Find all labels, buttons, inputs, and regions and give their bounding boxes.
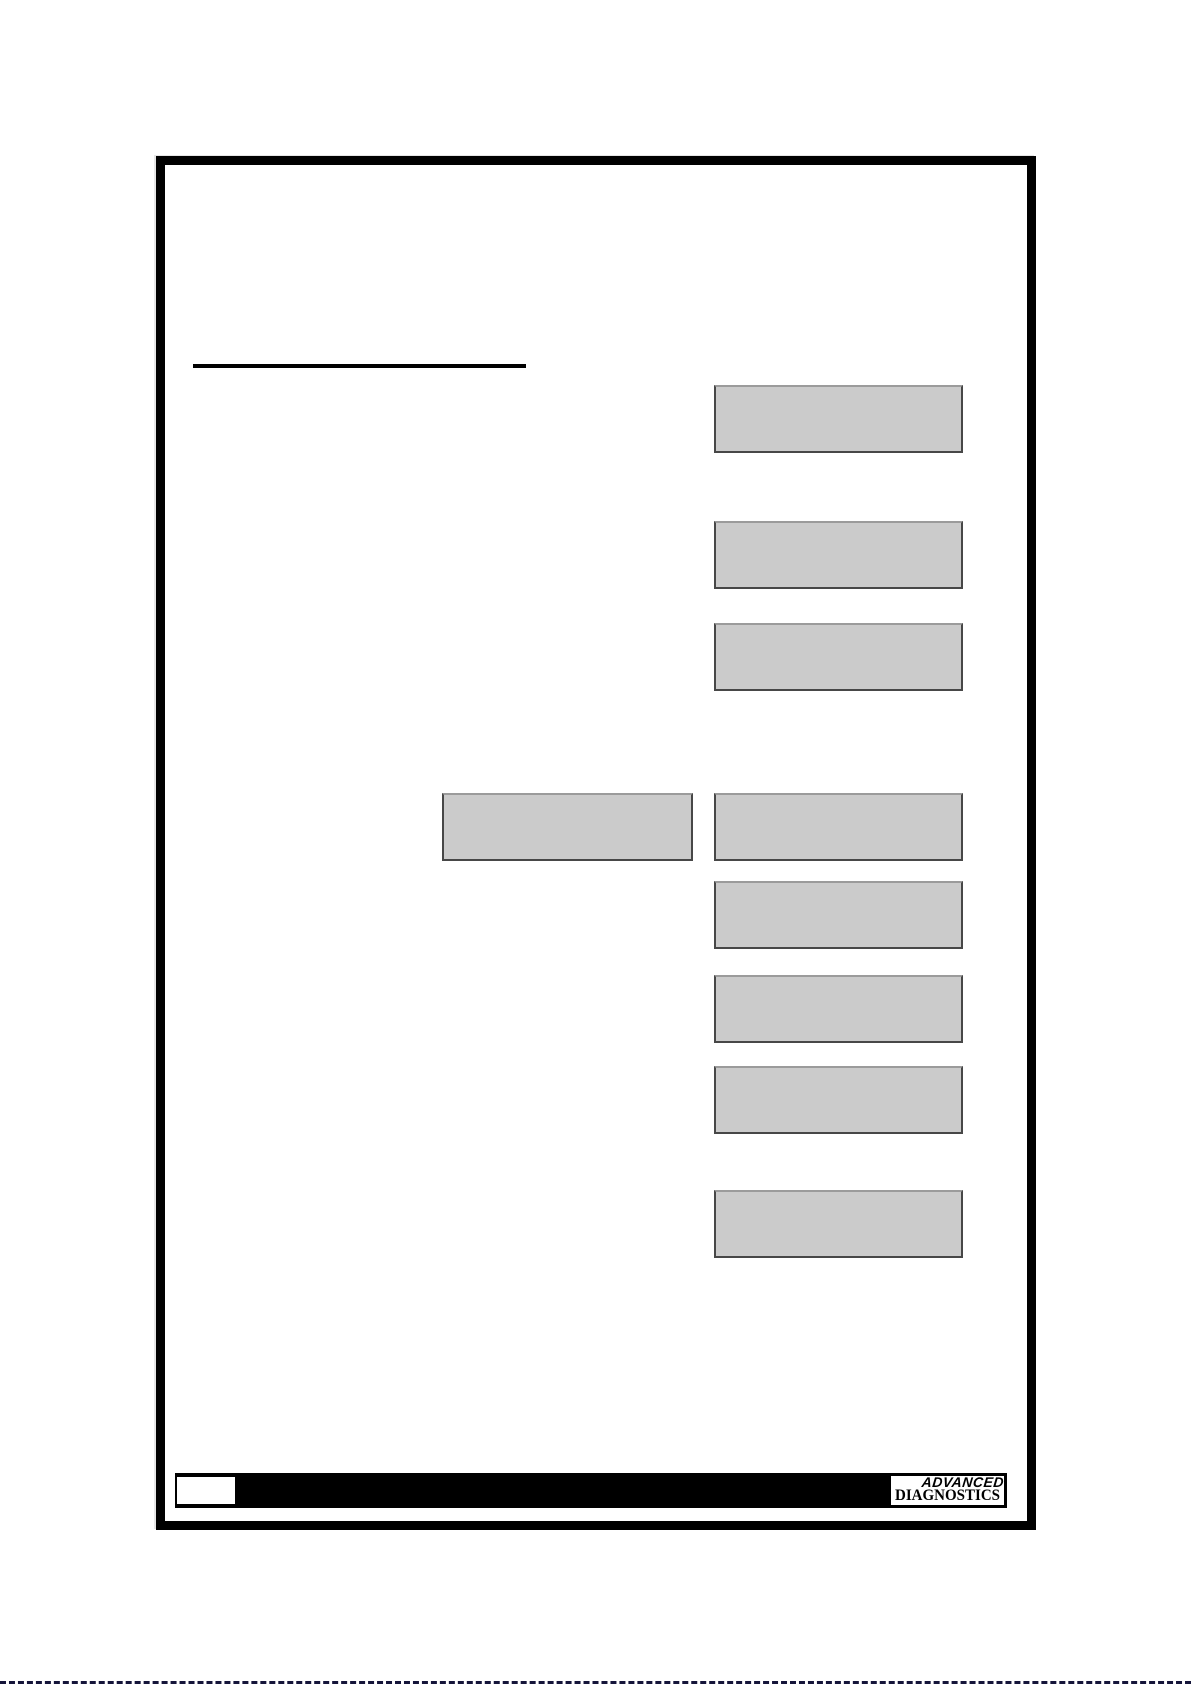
bottom-dashed-line — [0, 1681, 1191, 1684]
logo-diagnostics-text: DIAGNOSTICS — [891, 1489, 1004, 1505]
placeholder-box-right-5 — [714, 881, 963, 949]
page-number-box — [175, 1475, 237, 1506]
placeholder-box-right-8 — [714, 1190, 963, 1258]
placeholder-box-right-3 — [714, 623, 963, 691]
document-page: ADVANCED DIAGNOSTICS — [0, 0, 1191, 1685]
heading-underline — [193, 364, 526, 368]
footer-bar — [175, 1473, 890, 1508]
brand-logo: ADVANCED DIAGNOSTICS — [877, 1473, 1007, 1508]
placeholder-box-middle-1 — [442, 793, 693, 861]
placeholder-box-right-7 — [714, 1066, 963, 1134]
placeholder-box-right-6 — [714, 975, 963, 1043]
placeholder-box-right-4 — [714, 793, 963, 861]
placeholder-box-right-2 — [714, 521, 963, 589]
placeholder-box-right-1 — [714, 385, 963, 453]
